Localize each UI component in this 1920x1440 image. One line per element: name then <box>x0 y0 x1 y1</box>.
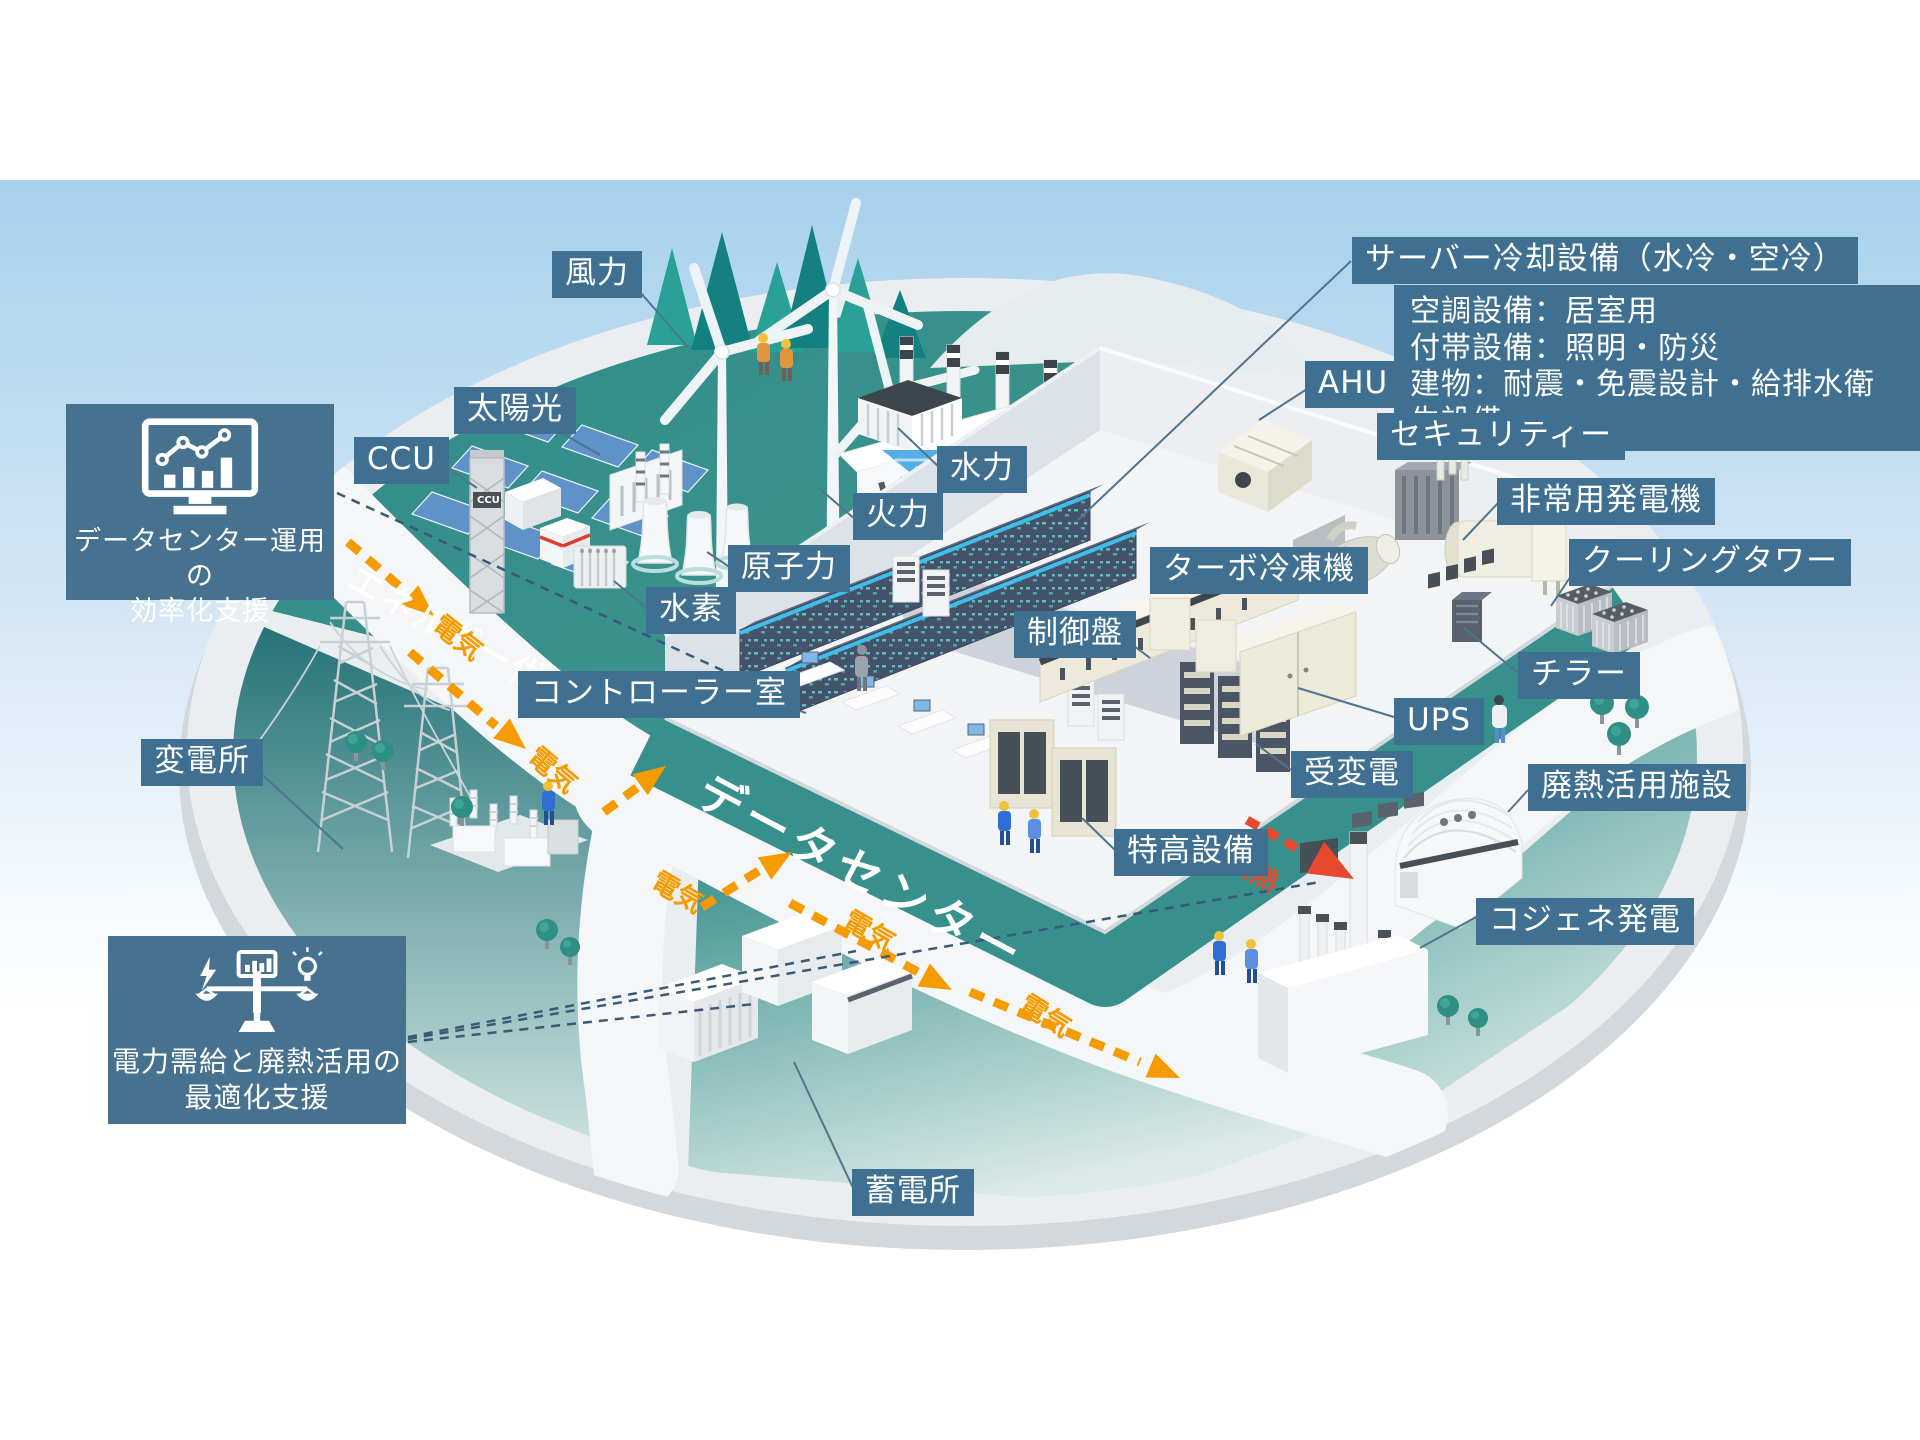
callout-nuclear: 原子力 <box>728 545 850 592</box>
callout-security: セキュリティー <box>1377 413 1625 460</box>
callout-waste-heat-facility: 廃熱活用施設 <box>1528 764 1746 811</box>
callout-hydro: 水力 <box>937 446 1027 493</box>
callout-receiving: 受変電 <box>1291 751 1413 798</box>
callout-control-panel: 制御盤 <box>1014 611 1136 658</box>
monitor-chart-icon <box>130 416 270 520</box>
dc-support-line1: データセンター運用の <box>66 524 334 594</box>
callout-chiller: チラー <box>1518 652 1640 699</box>
callout-emergency-generator: 非常用発電機 <box>1497 478 1715 525</box>
callout-cooling-tower: クーリングタワー <box>1569 539 1851 586</box>
infobox-line1: 空調設備：居室用 <box>1410 294 1904 331</box>
dc-support-line2: 効率化支援 <box>66 594 334 629</box>
callout-cogeneration: コジェネ発電 <box>1476 898 1694 945</box>
callout-server-cooling: サーバー冷却設備（水冷・空冷） <box>1352 237 1858 284</box>
isometric-illustration <box>0 0 1920 1440</box>
callout-ahu: AHU <box>1305 361 1401 408</box>
callout-hydrogen: 水素 <box>646 587 736 634</box>
callout-solar: 太陽光 <box>454 387 576 434</box>
callout-wind: 風力 <box>552 251 642 298</box>
balance-scale-icon <box>172 944 342 1040</box>
ccu-tower-text: CCU <box>477 495 500 506</box>
callout-extra-high-voltage: 特高設備 <box>1114 829 1268 876</box>
callout-substation: 変電所 <box>141 739 263 786</box>
infobox-line2: 付帯設備：照明・防災 <box>1410 331 1904 368</box>
callout-controller-room: コントローラー室 <box>518 671 800 718</box>
dc-operation-support-box: データセンター運用の 効率化支援 <box>66 404 334 600</box>
callout-ccu: CCU <box>354 437 449 484</box>
power-balance-line2: 最適化支援 <box>108 1080 406 1116</box>
callout-ups: UPS <box>1394 698 1484 745</box>
callout-thermal: 火力 <box>853 493 943 540</box>
power-balance-line1: 電力需給と廃熱活用の <box>108 1044 406 1080</box>
power-balance-support-box: 電力需給と廃熱活用の 最適化支援 <box>108 936 406 1124</box>
callout-storage: 蓄電所 <box>852 1169 974 1216</box>
callout-turbo-chiller: ターボ冷凍機 <box>1150 547 1368 594</box>
infographic-canvas: エネルギー供給 データセンター 電気 電気 電気 電気 電気 廃熱 CCU 風力… <box>0 0 1920 1440</box>
